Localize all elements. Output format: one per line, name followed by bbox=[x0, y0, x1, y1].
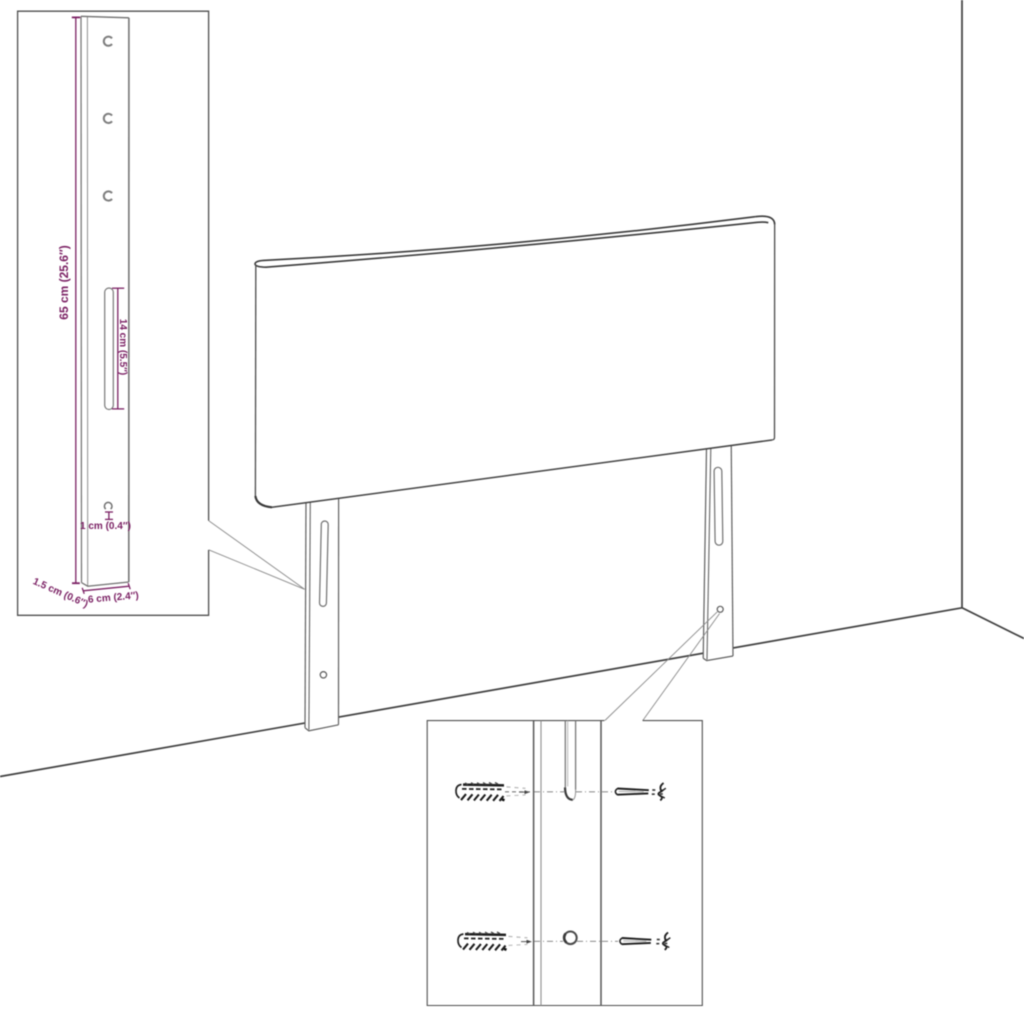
svg-text:65 cm (25.6″): 65 cm (25.6″) bbox=[57, 245, 71, 319]
svg-text:1 cm (0.4″): 1 cm (0.4″) bbox=[80, 521, 131, 532]
svg-text:14 cm (5.5″): 14 cm (5.5″) bbox=[117, 319, 128, 375]
